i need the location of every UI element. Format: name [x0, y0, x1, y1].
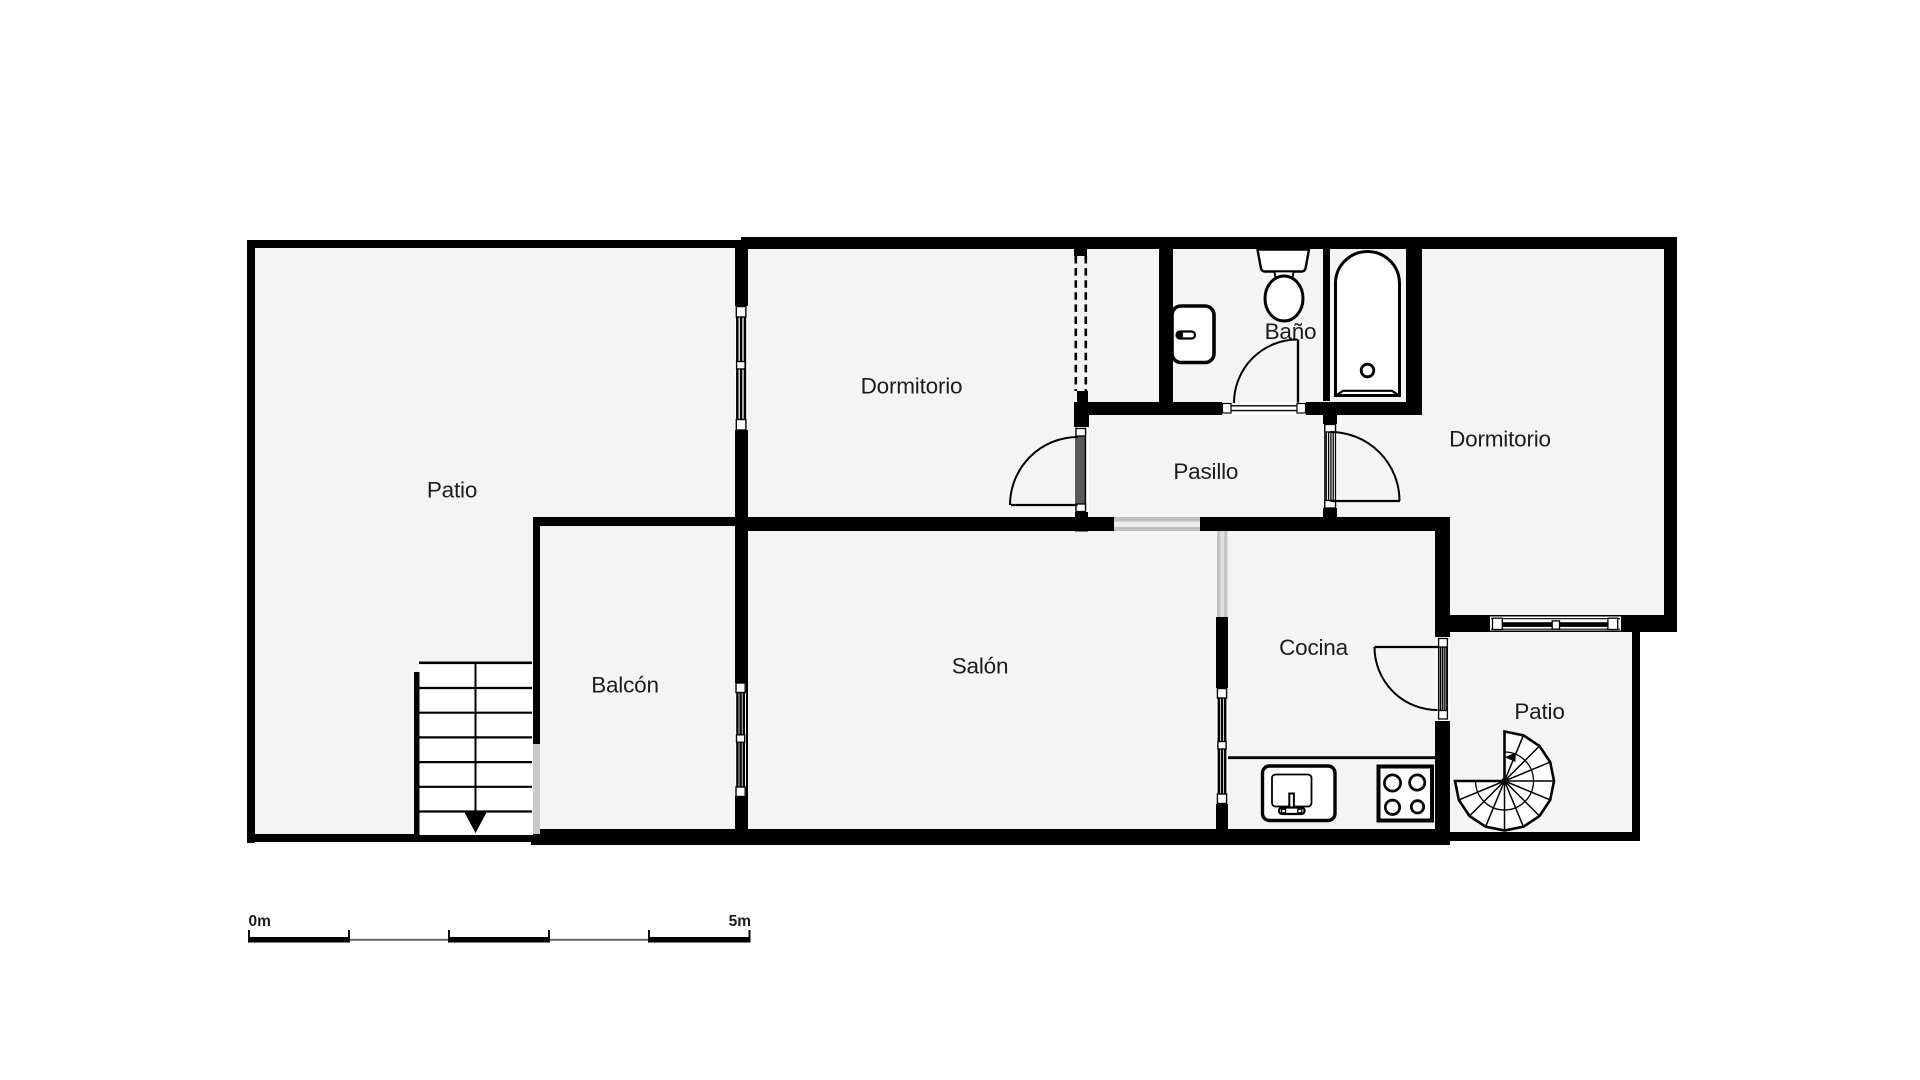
svg-text:Cocina: Cocina [1279, 635, 1349, 660]
svg-text:Balcón: Balcón [591, 672, 659, 697]
svg-text:Baño: Baño [1265, 319, 1317, 344]
svg-text:Dormitorio: Dormitorio [861, 374, 963, 399]
svg-text:Dormitorio: Dormitorio [1449, 427, 1551, 452]
svg-text:5m: 5m [729, 913, 751, 930]
svg-text:Patio: Patio [427, 478, 477, 503]
svg-text:Patio: Patio [1514, 699, 1564, 724]
svg-text:0m: 0m [249, 913, 271, 930]
svg-text:Pasillo: Pasillo [1173, 459, 1238, 484]
svg-text:Salón: Salón [952, 654, 1009, 679]
